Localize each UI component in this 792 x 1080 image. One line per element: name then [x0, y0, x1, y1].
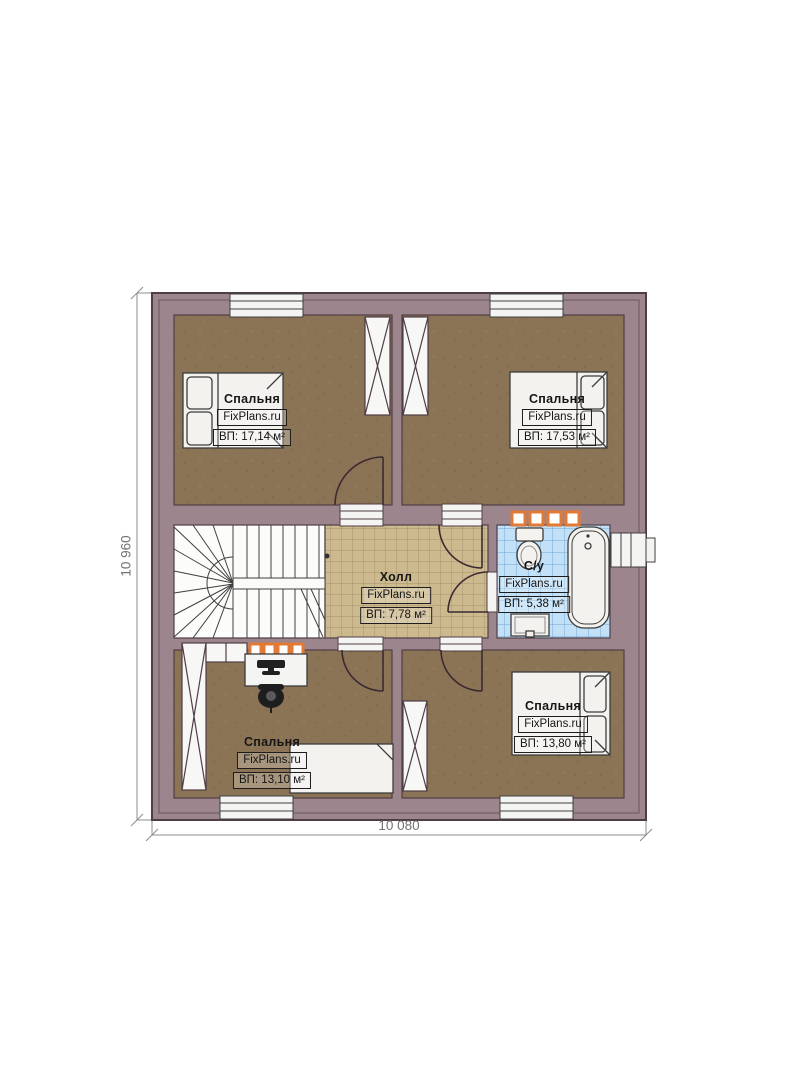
desk [245, 654, 307, 686]
room-brand: FixPlans.ru [361, 587, 431, 604]
dimension-height-label: 10 960 [119, 535, 134, 576]
bathtub [568, 527, 609, 628]
window-bottom-right [500, 796, 573, 819]
dimension-line-left [131, 287, 151, 826]
room-name: Спальня [514, 699, 592, 713]
room-name: С/у [498, 559, 570, 573]
wardrobe-top-right [403, 317, 428, 415]
dimension-width-label: 10 080 [378, 818, 419, 833]
room-area: ВП: 5,38 м² [498, 596, 570, 613]
room-label-hall: Холл FixPlans.ru ВП: 7,78 м² [360, 570, 432, 624]
wardrobe-bottom-left [182, 643, 206, 790]
room-brand: FixPlans.ru [522, 409, 592, 426]
room-brand: FixPlans.ru [499, 576, 569, 593]
room-label-bedroom-top-left: Спальня FixPlans.ru ВП: 17,14 м² [213, 392, 291, 446]
room-area: ВП: 17,53 м² [518, 429, 596, 446]
room-label-bedroom-bottom-left: Спальня FixPlans.ru ВП: 13,10 м² [233, 735, 311, 789]
room-area: ВП: 17,14 м² [213, 429, 291, 446]
cabinet-bottom-left [206, 643, 247, 662]
sink [511, 614, 549, 637]
room-brand: FixPlans.ru [237, 752, 307, 769]
floor-plan-canvas: Спальня FixPlans.ru ВП: 17,14 м² Спальня… [0, 0, 792, 1080]
window-top-left [230, 294, 303, 317]
room-name: Спальня [213, 392, 291, 406]
window-bottom-left [220, 796, 293, 819]
room-area: ВП: 13,80 м² [514, 736, 592, 753]
room-brand: FixPlans.ru [217, 409, 287, 426]
room-area: ВП: 13,10 м² [233, 772, 311, 789]
room-area: ВП: 7,78 м² [360, 607, 432, 624]
window-right-bathroom [611, 533, 655, 567]
radiator-bedroom-bottom-left [250, 644, 303, 655]
wardrobe-top-left [365, 317, 390, 415]
room-label-bedroom-top-right: Спальня FixPlans.ru ВП: 17,53 м² [518, 392, 596, 446]
room-name: Холл [360, 570, 432, 584]
room-brand: FixPlans.ru [518, 716, 588, 733]
wardrobe-bottom-middle [403, 701, 427, 791]
room-name: Спальня [233, 735, 311, 749]
window-top-right [490, 294, 563, 317]
room-label-bathroom: С/у FixPlans.ru ВП: 5,38 м² [498, 559, 570, 613]
room-name: Спальня [518, 392, 596, 406]
stair-newel-knob [325, 554, 330, 559]
room-label-bedroom-bottom-right: Спальня FixPlans.ru ВП: 13,80 м² [514, 699, 592, 753]
